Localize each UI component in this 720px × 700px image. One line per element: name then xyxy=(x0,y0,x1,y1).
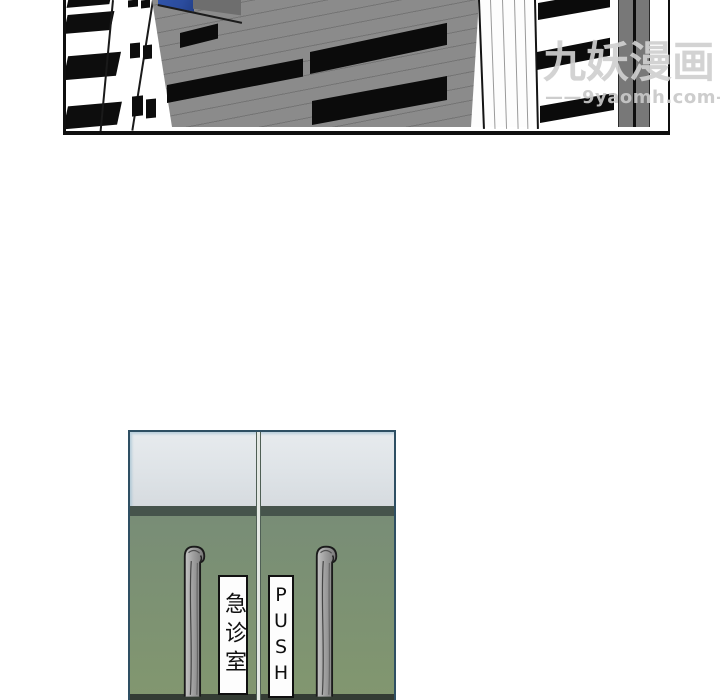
small-window xyxy=(130,42,140,58)
window-band xyxy=(64,11,115,34)
double-doors-panel: 急诊室 P U S H xyxy=(128,430,396,700)
push-sign-letter: P xyxy=(275,586,286,605)
small-window xyxy=(146,98,156,118)
push-sign-letter: U xyxy=(274,612,288,631)
door-transom-bar xyxy=(130,506,394,516)
window-band xyxy=(63,52,121,81)
window-band xyxy=(67,0,112,8)
window-band xyxy=(538,0,610,20)
watermark-site-url: ——9yaomh.com—— xyxy=(545,87,720,108)
small-window xyxy=(143,45,152,60)
emergency-room-sign-text: 急诊室 xyxy=(222,592,244,679)
door-center-divider xyxy=(256,432,261,700)
small-window xyxy=(141,0,150,8)
door-bottom-strip xyxy=(130,694,394,700)
door-glass-top xyxy=(130,432,394,506)
comic-page: 九妖漫画 ——9yaomh.com—— xyxy=(0,0,720,700)
door-handle-left[interactable] xyxy=(182,539,208,700)
door-handle-right[interactable] xyxy=(314,539,340,700)
window-band xyxy=(63,102,122,130)
emergency-room-sign: 急诊室 xyxy=(218,575,248,695)
push-sign-letter: S xyxy=(275,638,287,657)
small-window xyxy=(128,0,138,8)
push-sign-letter: H xyxy=(274,664,288,683)
push-sign: P U S H xyxy=(268,575,294,698)
small-window xyxy=(132,95,143,116)
watermark-brand: 九妖漫画 xyxy=(543,40,715,87)
